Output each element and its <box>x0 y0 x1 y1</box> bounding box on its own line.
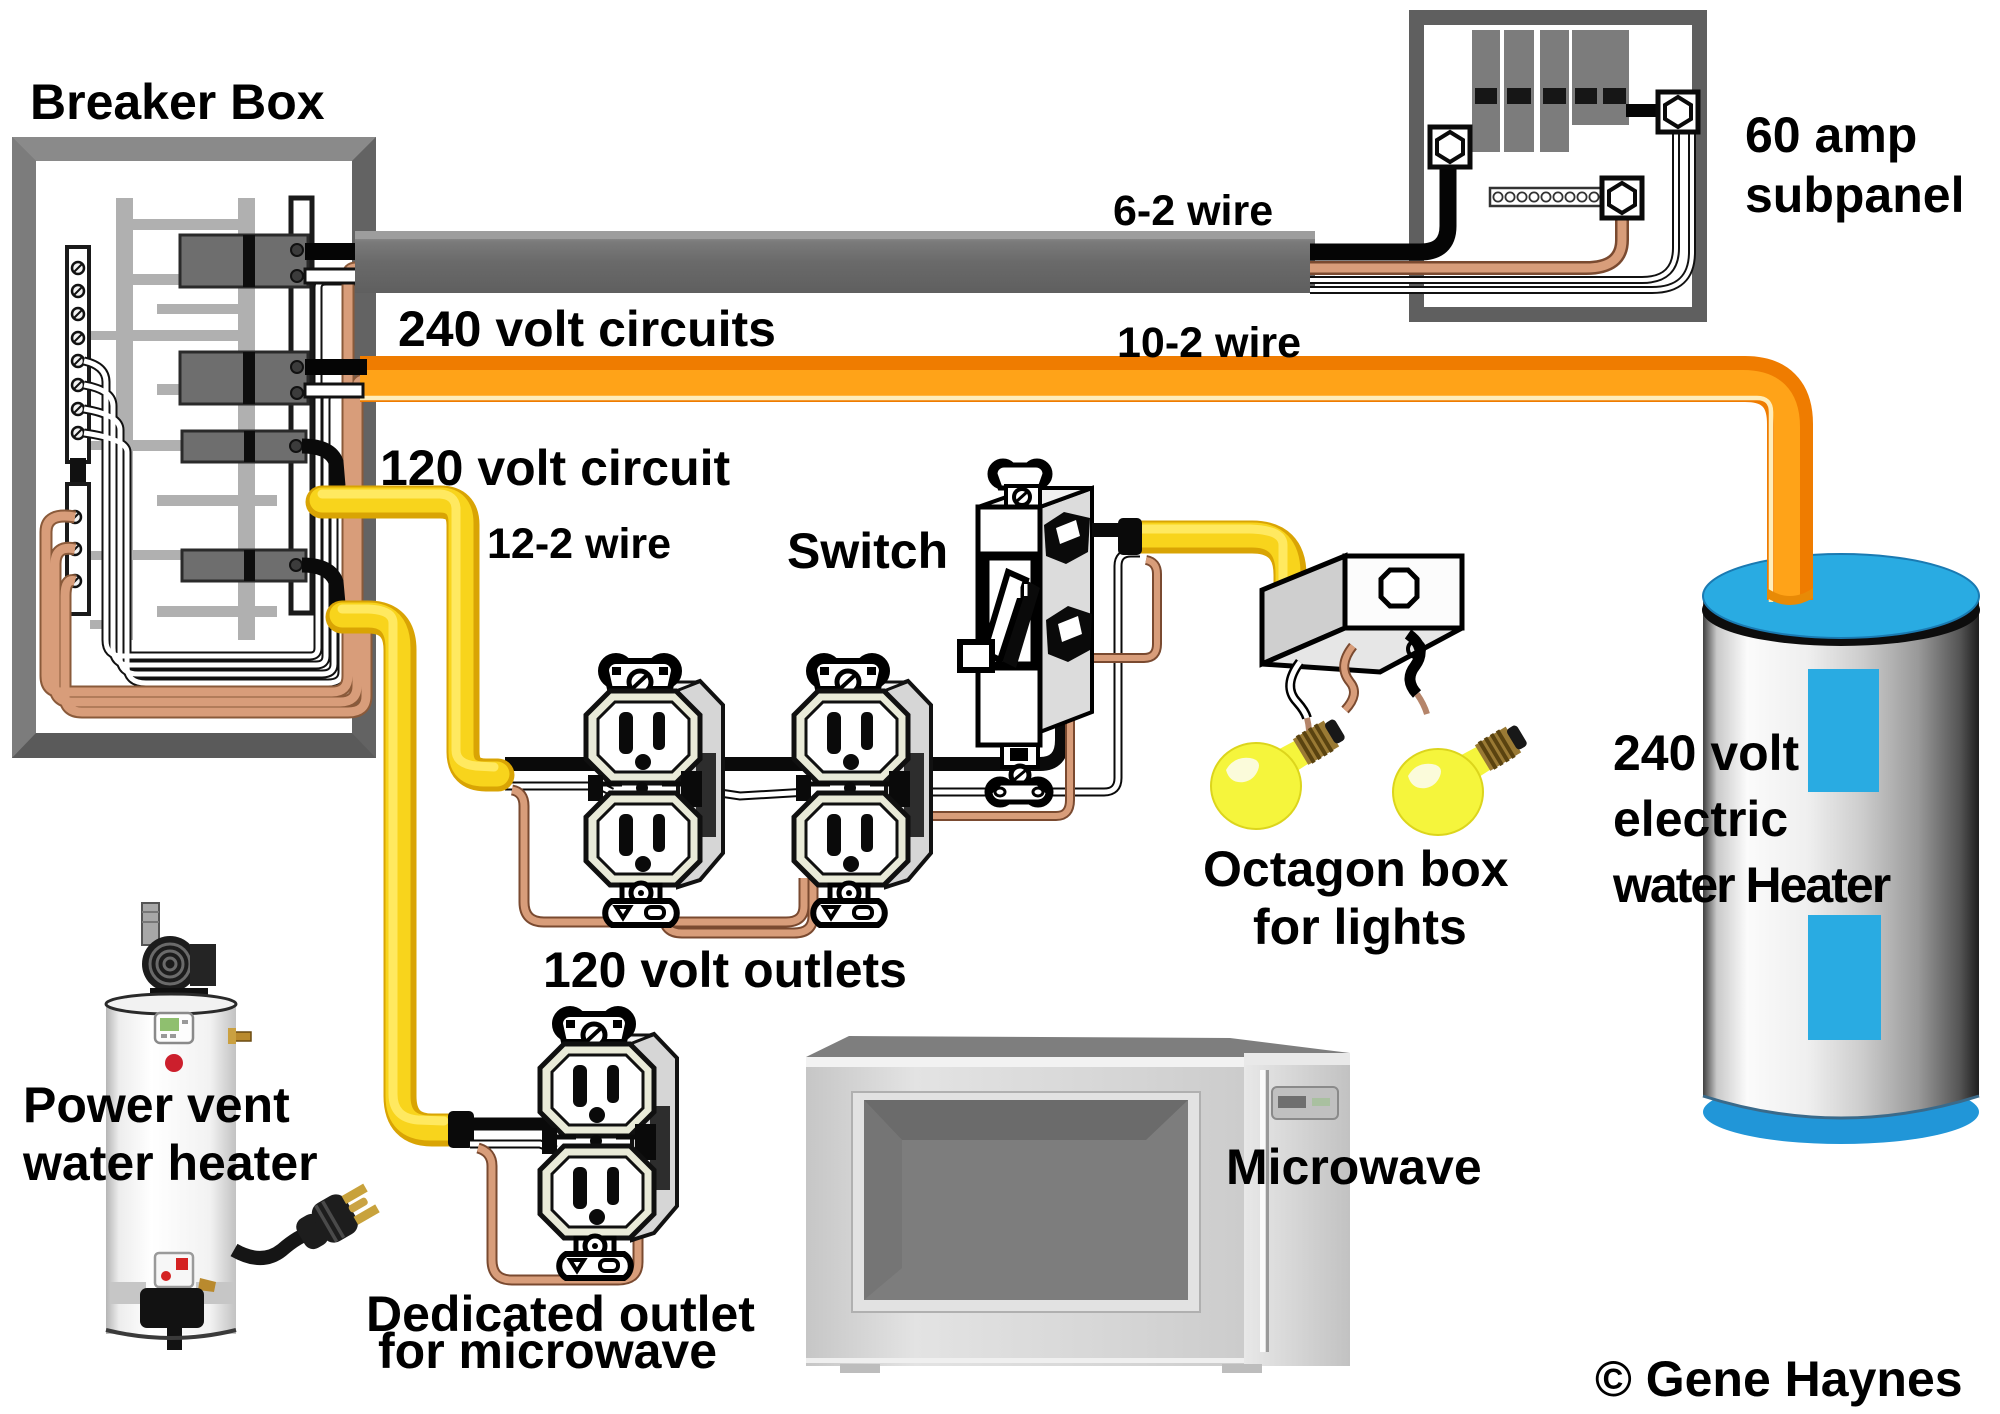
svg-text:subpanel: subpanel <box>1745 167 1964 223</box>
svg-text:12-2 wire: 12-2 wire <box>487 520 671 568</box>
svg-text:© Gene Haynes: © Gene Haynes <box>1595 1351 1963 1407</box>
svg-text:Breaker Box: Breaker Box <box>30 74 325 130</box>
svg-text:60 amp: 60 amp <box>1745 107 1917 163</box>
svg-text:120 volt outlets: 120 volt outlets <box>543 942 907 998</box>
svg-text:Microwave: Microwave <box>1226 1139 1482 1195</box>
svg-text:for microwave: for microwave <box>378 1323 717 1379</box>
svg-text:water Heater: water Heater <box>1612 857 1891 913</box>
svg-text:electric: electric <box>1613 791 1788 847</box>
svg-text:Switch: Switch <box>787 523 948 579</box>
svg-text:Octagon box: Octagon box <box>1203 841 1509 897</box>
svg-text:for lights: for lights <box>1253 899 1467 955</box>
svg-text:240 volt circuits: 240 volt circuits <box>398 301 776 357</box>
svg-text:10-2 wire: 10-2 wire <box>1117 319 1301 367</box>
svg-text:120 volt circuit: 120 volt circuit <box>380 440 730 496</box>
svg-text:240 volt: 240 volt <box>1613 725 1800 781</box>
svg-text:Power vent: Power vent <box>23 1077 290 1133</box>
svg-text:6-2 wire: 6-2 wire <box>1113 187 1273 235</box>
svg-text:water heater: water heater <box>22 1135 318 1191</box>
